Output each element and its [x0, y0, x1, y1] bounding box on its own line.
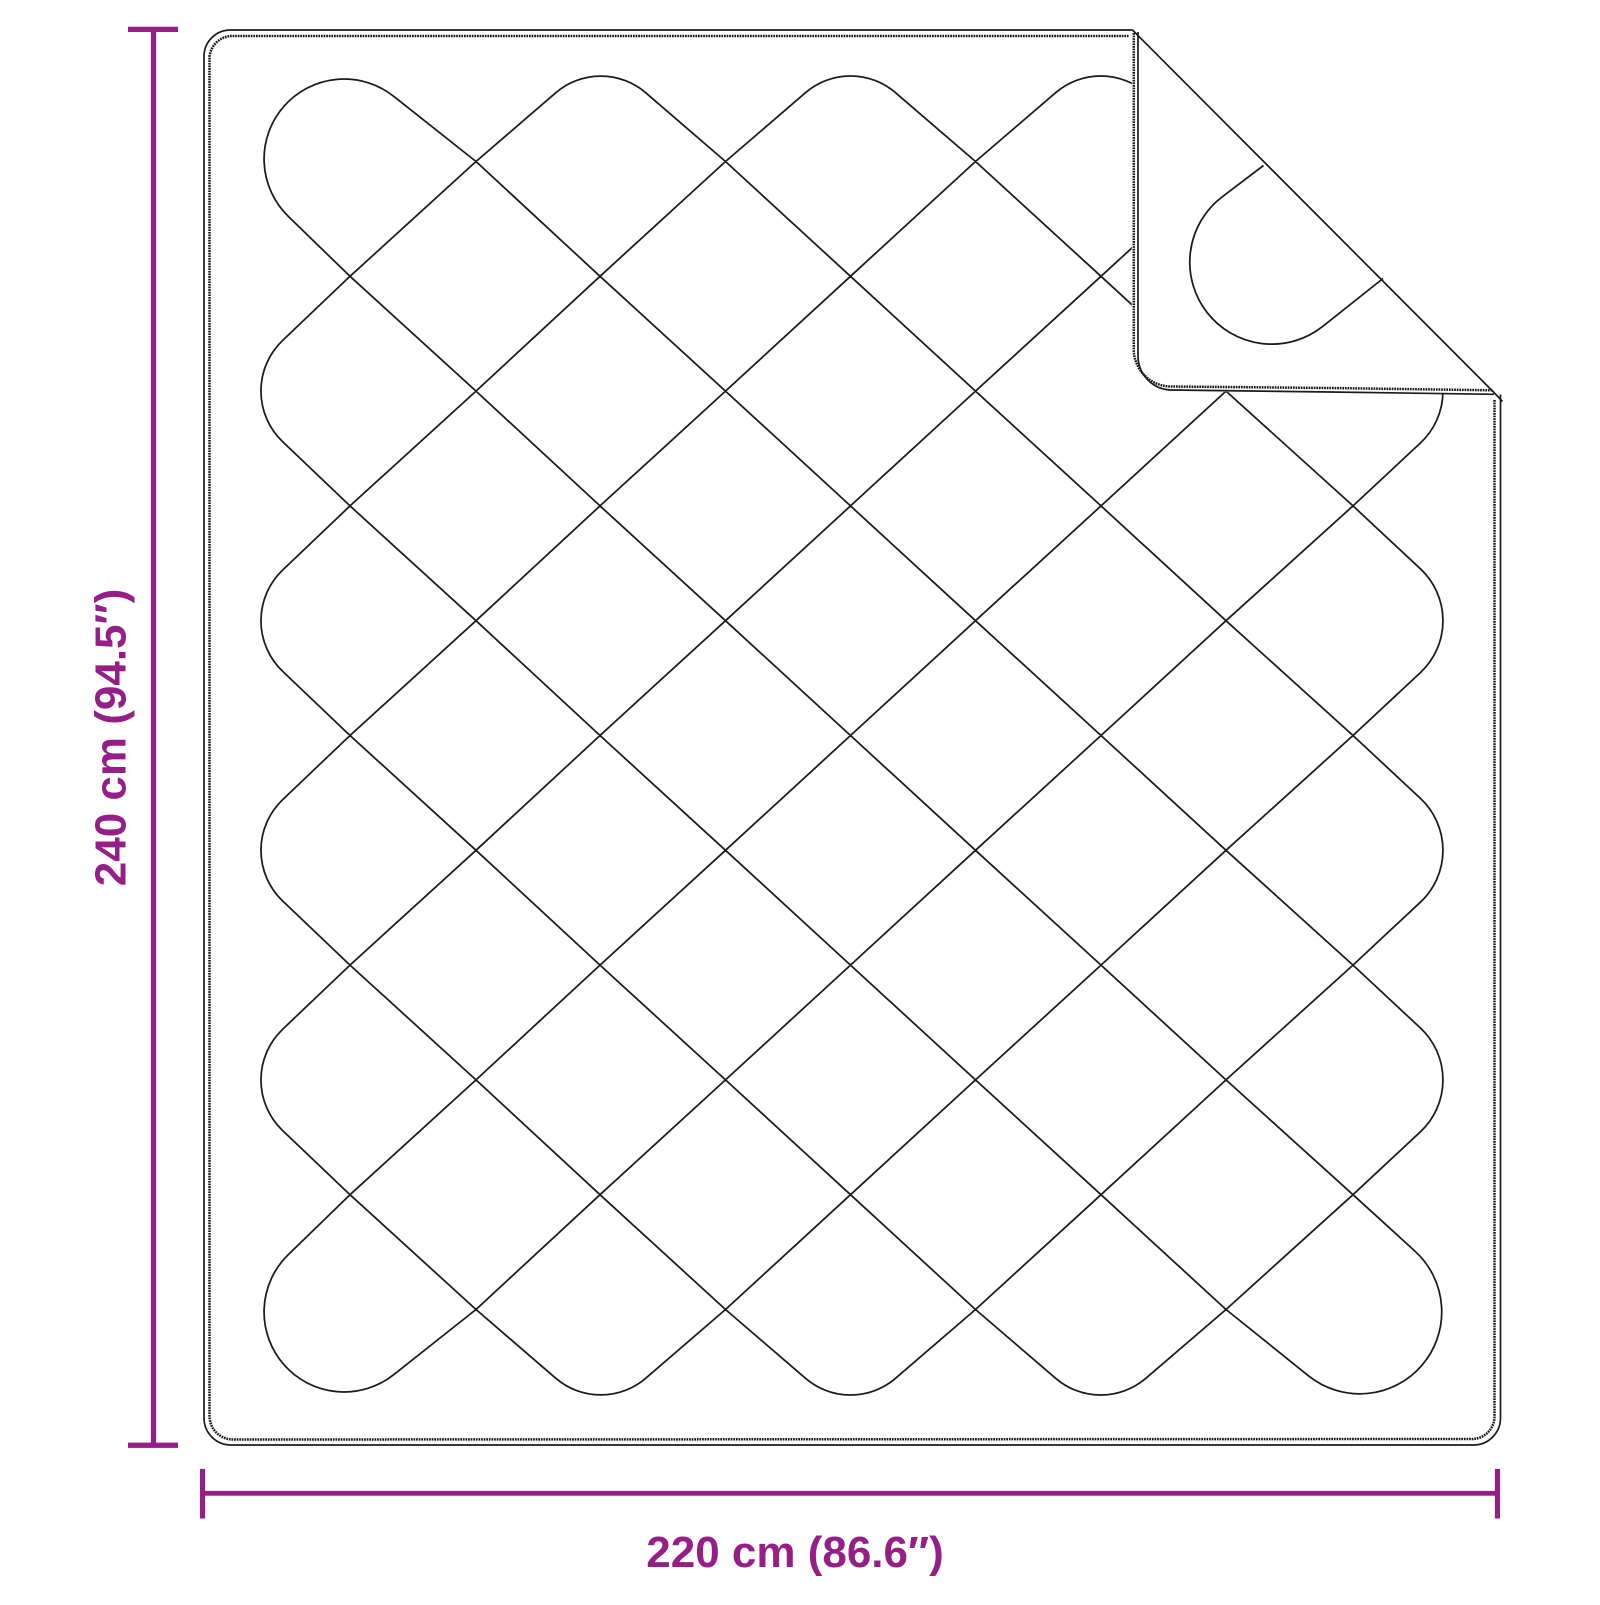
svg-text:220 cm (86.6″): 220 cm (86.6″)	[646, 1528, 943, 1577]
svg-text:240 cm (94.5″): 240 cm (94.5″)	[87, 589, 136, 886]
